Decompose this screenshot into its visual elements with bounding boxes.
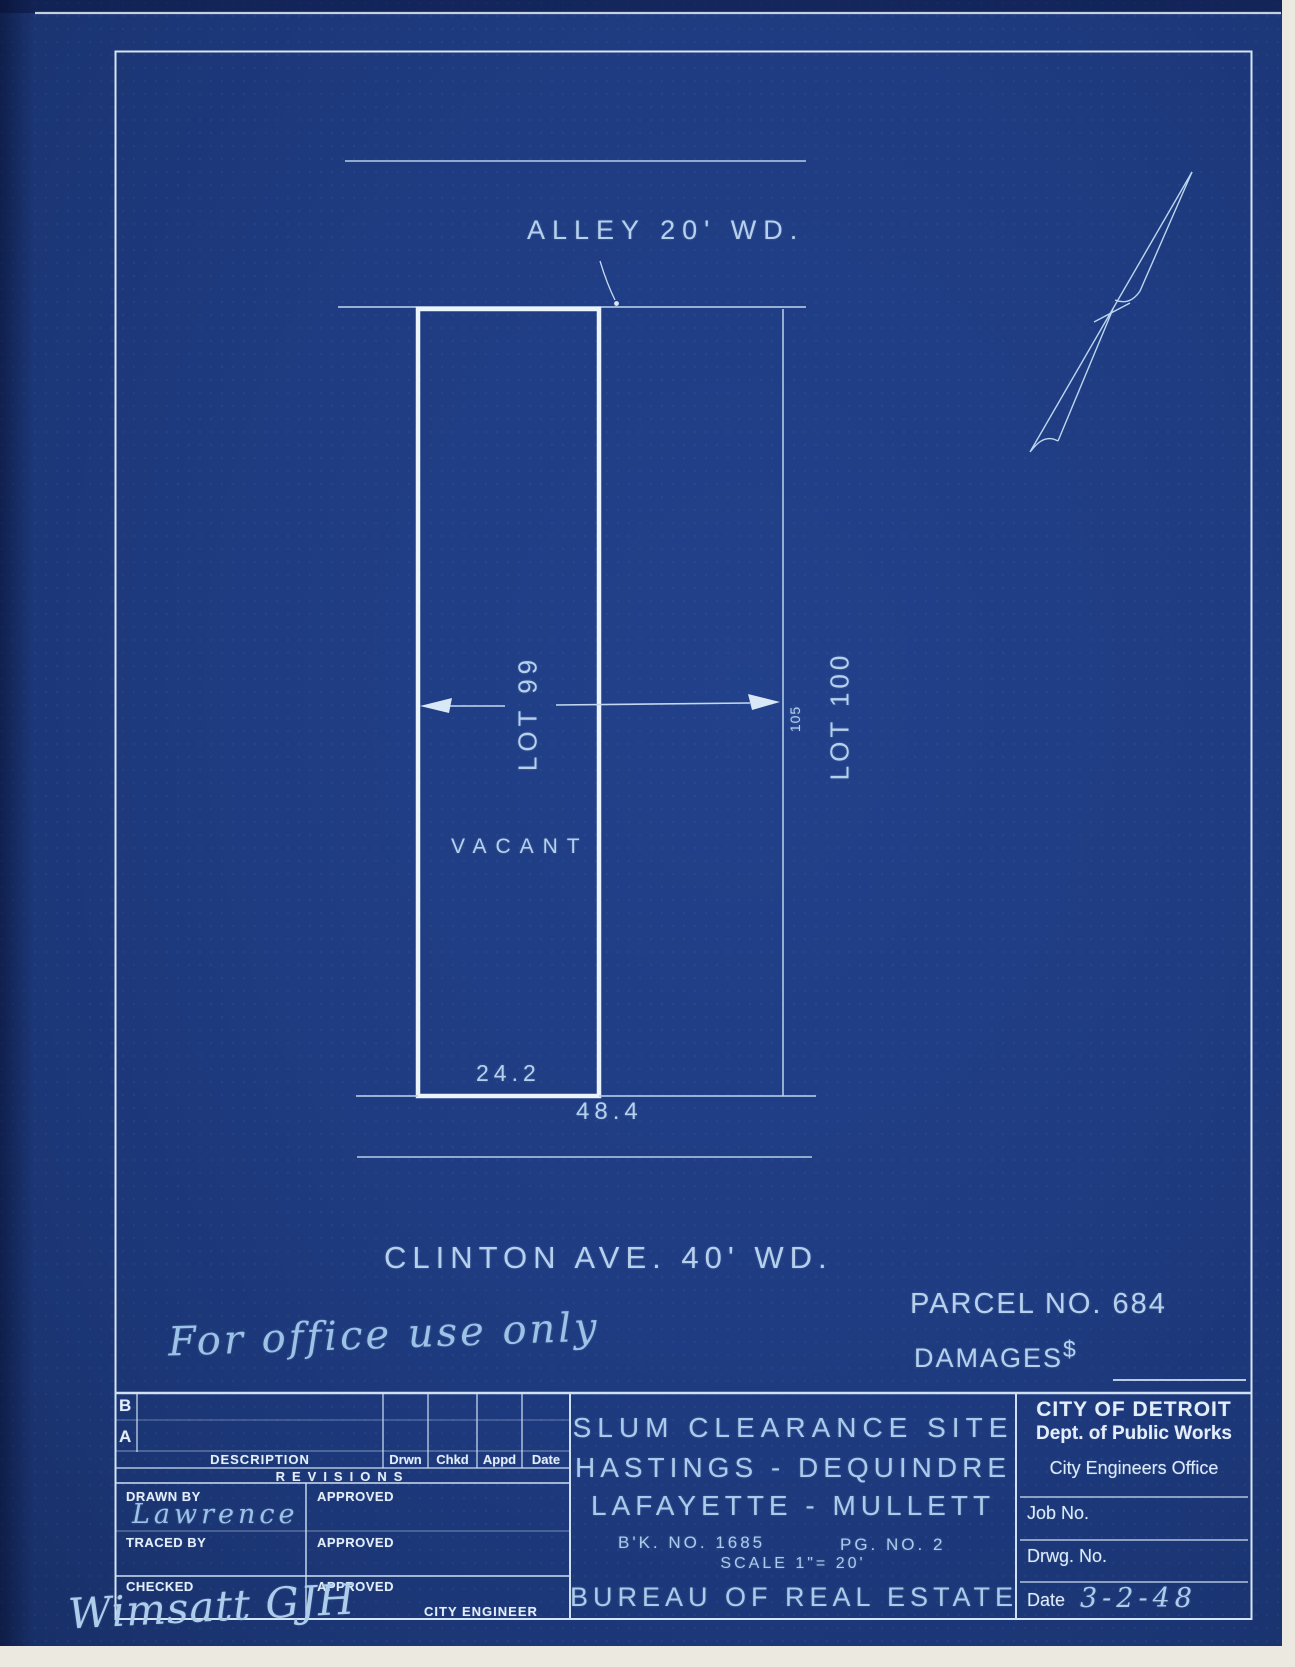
page-number: PG. NO. 2 (840, 1535, 945, 1555)
column-header-date: Date (522, 1452, 570, 1467)
damages-label-text: DAMAGES (914, 1343, 1063, 1373)
clinton-ave-label: CLINTON AVE. 40' WD. (384, 1240, 833, 1276)
lot99-label: LOT 99 (513, 655, 544, 771)
lot100-label: LOT 100 (825, 652, 856, 781)
description-header: DESCRIPTION (137, 1452, 383, 1467)
scale-note: SCALE 1"= 20' (570, 1555, 1016, 1573)
revision-row-b-label: B (119, 1396, 131, 1416)
sheet-edge-shadow (0, 0, 34, 1646)
approved-label-2: APPROVED (317, 1535, 394, 1550)
project-title-line1: SLUM CLEARANCE SITE (570, 1412, 1016, 1444)
date-label: Date (1027, 1590, 1065, 1611)
revisions-title: REVISIONS (115, 1469, 570, 1484)
damages-label: DAMAGES$ (914, 1336, 1078, 1374)
approved-label-1: APPROVED (317, 1489, 394, 1504)
alley-label: ALLEY 20' WD. (527, 215, 804, 246)
project-title-line2: HASTINGS - DEQUINDRE (570, 1452, 1016, 1484)
project-title-line3: LAFAYETTE - MULLETT (570, 1490, 1016, 1522)
column-header-appd: Appd (477, 1452, 522, 1467)
agency-line2: Dept. of Public Works (1016, 1423, 1252, 1445)
job-no-label: Job No. (1027, 1503, 1089, 1524)
city-engineer-label: CITY ENGINEER (424, 1604, 538, 1619)
agency-line3: City Engineers Office (1016, 1458, 1252, 1479)
total-frontage-dimension: 48.4 (576, 1098, 643, 1126)
blueprint-scan: ALLEY 20' WD. LOT 99 LOT 100 105 VACANT … (0, 0, 1295, 1667)
traced-by-label: TRACED BY (126, 1535, 206, 1550)
damages-dollar-sign: $ (1063, 1336, 1078, 1362)
sheet-top-edge (0, 0, 1282, 13)
column-header-drwn: Drwn (383, 1452, 428, 1467)
book-number: B'K. NO. 1685 (618, 1533, 765, 1553)
drawn-by-signature: Lawrence (132, 1499, 299, 1530)
lot-depth-dimension: 105 (787, 706, 803, 732)
parcel-number: PARCEL NO. 684 (910, 1288, 1167, 1321)
agency-line1: CITY OF DETROIT (1016, 1398, 1252, 1422)
bureau-label: BUREAU OF REAL ESTATE (570, 1582, 1016, 1613)
revision-row-a-label: A (119, 1427, 131, 1447)
frontage-dimension: 24.2 (476, 1060, 541, 1087)
column-header-chkd: Chkd (428, 1452, 477, 1467)
date-value: 3-2-48 (1080, 1583, 1197, 1614)
vacant-label: VACANT (451, 835, 589, 859)
drwg-no-label: Drwg. No. (1027, 1546, 1107, 1567)
